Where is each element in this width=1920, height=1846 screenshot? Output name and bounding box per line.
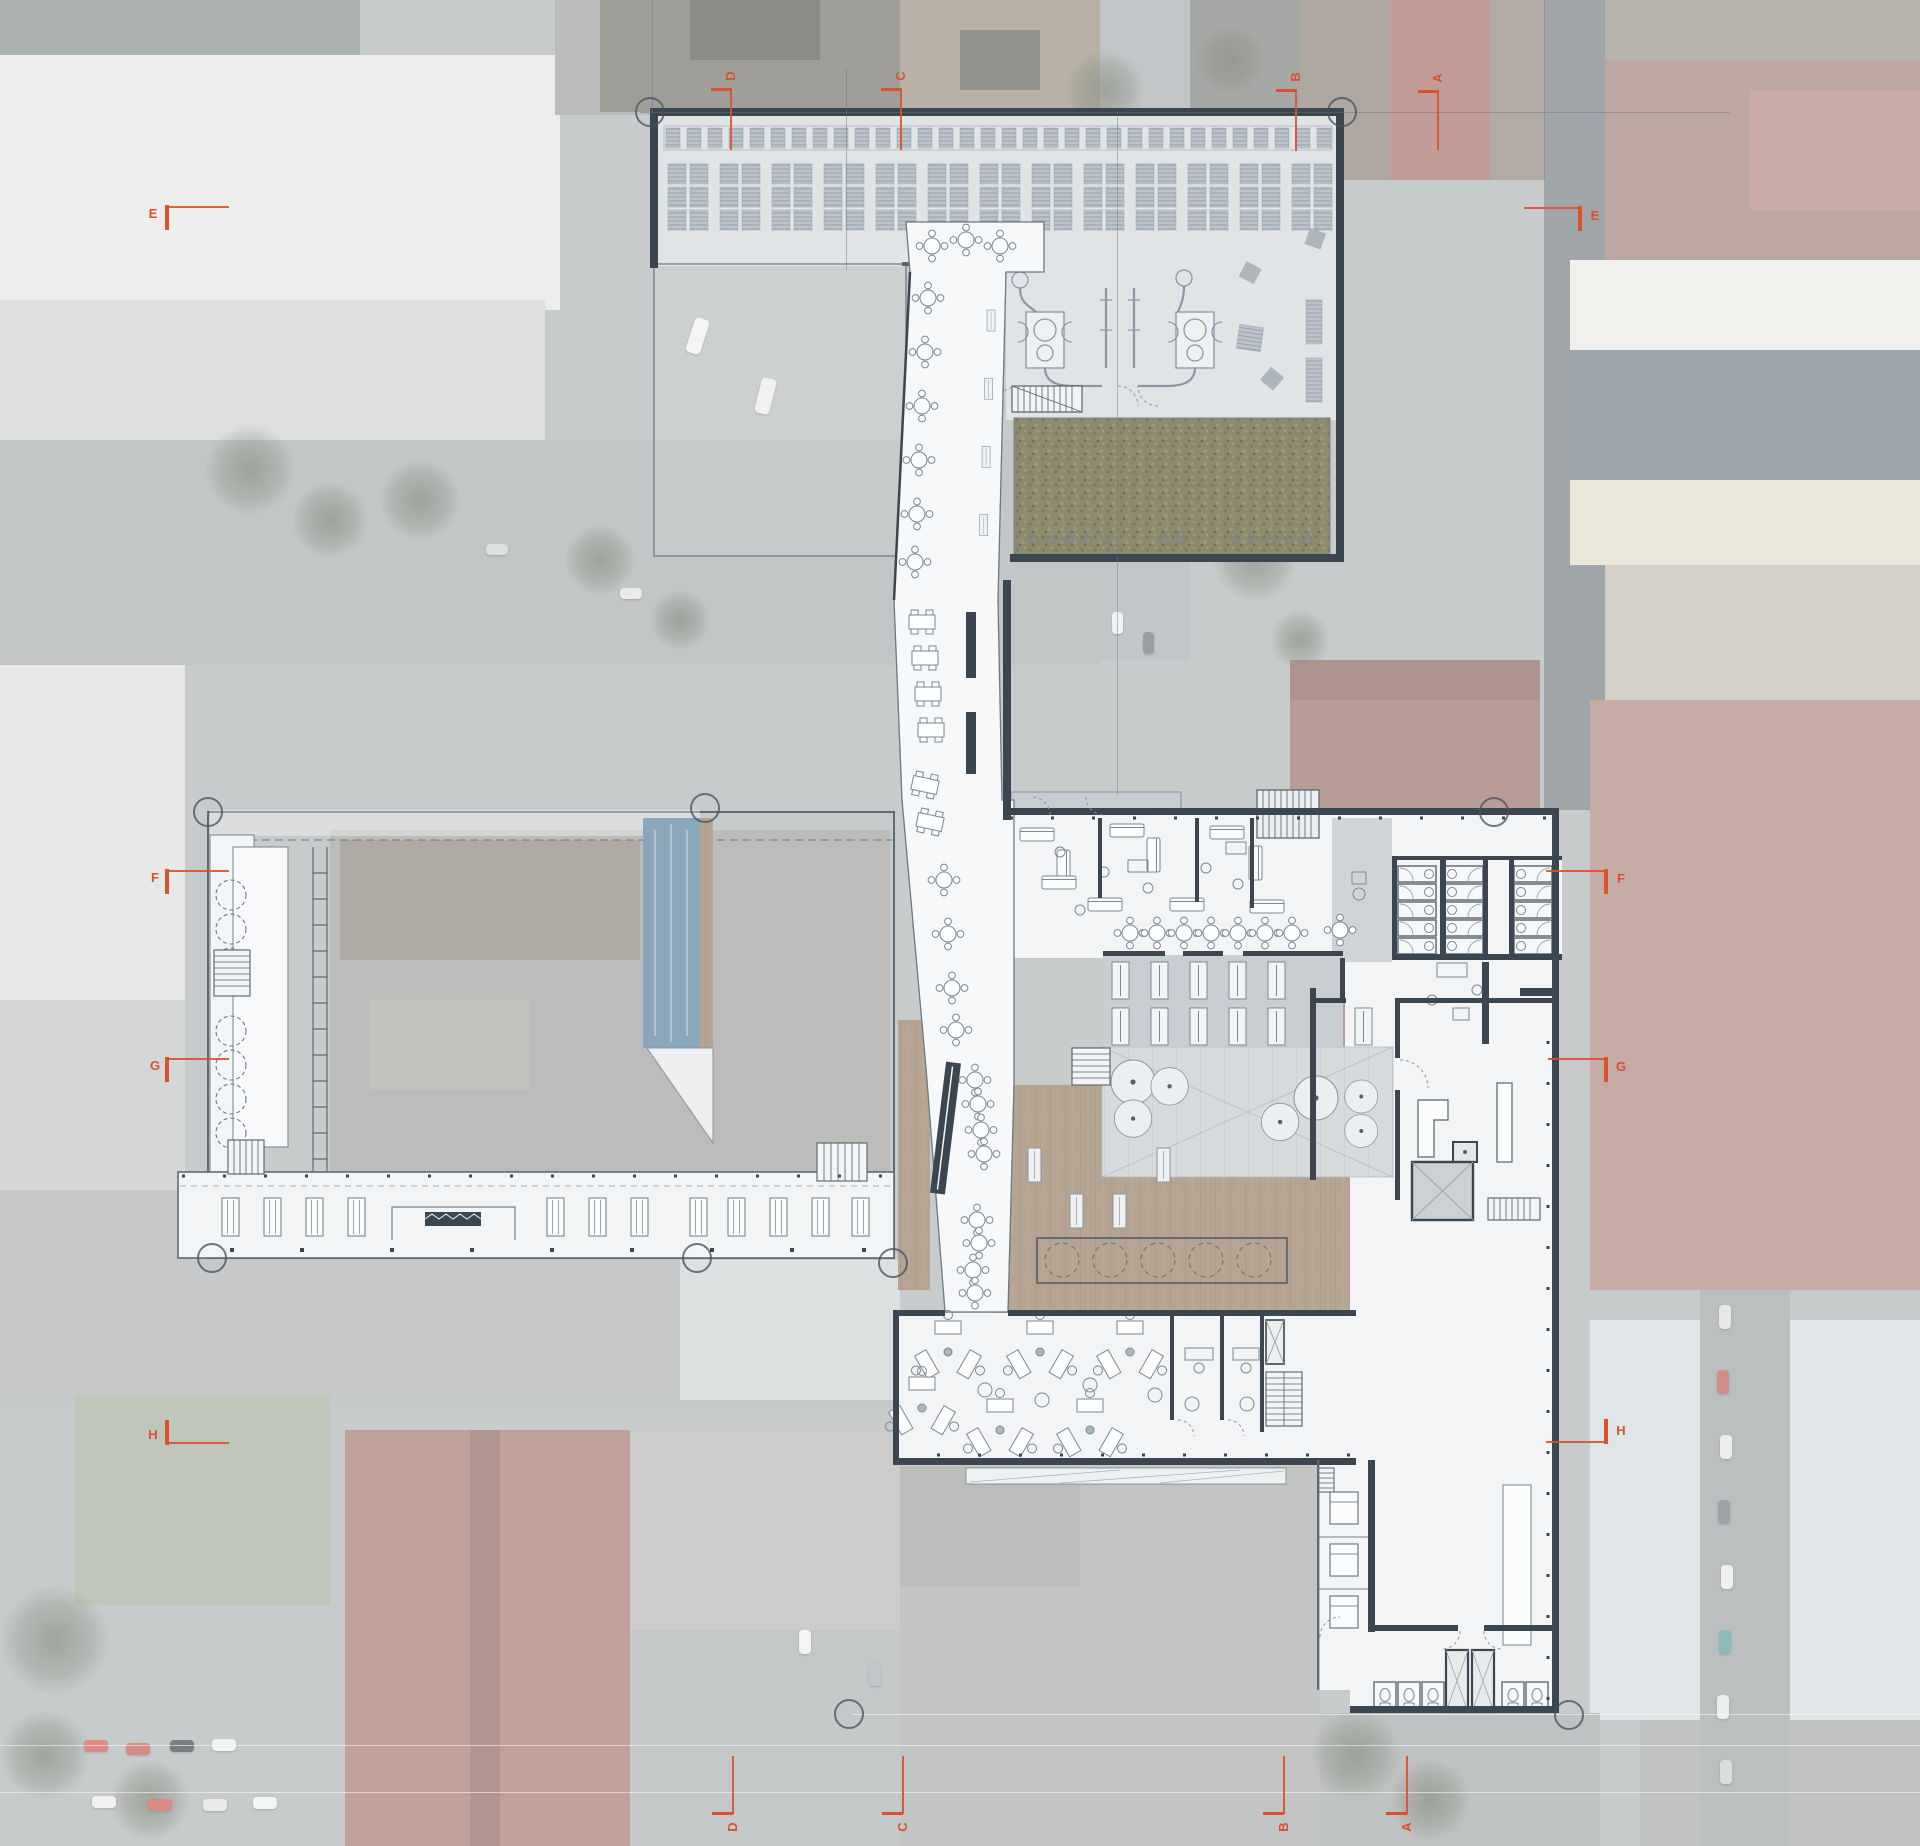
section-marker-tick [881, 88, 902, 91]
section-marker-tick [1386, 1812, 1407, 1815]
section-marker-line [1295, 91, 1297, 151]
section-marker-line [1406, 1756, 1408, 1814]
section-marker-tick [165, 1057, 169, 1082]
section-marker-tick [1604, 1419, 1608, 1444]
grid-line [1117, 112, 1118, 795]
section-marker-label: E [144, 206, 162, 222]
section-marker-tick [711, 88, 732, 91]
grid-line [640, 112, 1730, 113]
section-marker-label: A [1399, 1818, 1415, 1836]
section-marker-tick [1604, 1057, 1608, 1082]
left-wing-stair [214, 950, 250, 996]
ramp [647, 1048, 713, 1143]
grid-bubble [878, 1248, 908, 1278]
crane-rail [313, 847, 327, 1173]
grid-line [846, 68, 847, 270]
section-marker-line [169, 1058, 229, 1060]
section-marker-tick [882, 1812, 903, 1815]
floor-plan-drawing [0, 0, 1920, 1846]
section-marker-tick [712, 1812, 733, 1815]
grid-line [652, 0, 653, 112]
section-marker-line [169, 1442, 229, 1444]
section-marker-label: G [146, 1058, 164, 1074]
grid-line [0, 1792, 1920, 1793]
section-marker-tick [1578, 206, 1582, 231]
grid-bubble [1479, 797, 1509, 827]
section-marker-line [1546, 870, 1604, 872]
section-marker-label: C [895, 1818, 911, 1836]
section-marker-line [1546, 1441, 1604, 1443]
section-marker-label: F [1612, 871, 1630, 887]
section-marker-label: D [725, 1818, 741, 1836]
grid-bubble [834, 1699, 864, 1729]
grid-bubble [1327, 97, 1357, 127]
section-marker-label: C [893, 67, 909, 85]
section-marker-label: G [1612, 1059, 1630, 1075]
section-marker-line [730, 90, 732, 150]
section-marker-line [732, 1756, 734, 1814]
section-marker-label: E [1586, 208, 1604, 224]
section-marker-line [169, 870, 229, 872]
wing-counter [1503, 1485, 1531, 1645]
section-marker-label: D [723, 67, 739, 85]
grid-bubble [682, 1243, 712, 1273]
left-building [178, 810, 894, 1258]
pool-deck [700, 818, 713, 1048]
section-marker-tick [1263, 1812, 1284, 1815]
section-marker-tick [1604, 869, 1608, 894]
section-marker-line [1524, 207, 1578, 209]
section-marker-label: H [1612, 1423, 1630, 1439]
grid-bubble [197, 1243, 227, 1273]
section-marker-tick [165, 869, 169, 894]
grid-line [0, 1745, 1920, 1746]
section-marker-tick [1276, 89, 1297, 92]
grid-line [852, 1714, 1920, 1715]
grid-bubble [193, 797, 223, 827]
section-marker-label: B [1288, 68, 1304, 86]
grass-courtyard [1014, 418, 1330, 554]
grid-bubble [690, 793, 720, 823]
section-marker-line [902, 1756, 904, 1814]
left-bottom-wing [178, 1140, 894, 1258]
servery-floor [1103, 955, 1343, 1047]
section-marker-label: H [144, 1427, 162, 1443]
section-marker-label: A [1430, 69, 1446, 87]
section-marker-label: F [146, 870, 164, 886]
section-marker-line [1437, 92, 1439, 150]
section-marker-line [1283, 1756, 1285, 1814]
grid-bubble [1554, 1700, 1584, 1730]
grid-bubble [635, 97, 665, 127]
section-marker-label: B [1276, 1818, 1292, 1836]
section-marker-line [900, 90, 902, 150]
section-marker-line [1548, 1058, 1604, 1060]
site-plan-canvas: EFGHEFGHDCBADCBA [0, 0, 1920, 1846]
section-marker-tick [1418, 90, 1439, 93]
section-marker-tick [165, 205, 169, 230]
grid-line [1544, 0, 1545, 808]
hall-entry-stair [1012, 386, 1082, 412]
section-marker-line [169, 206, 229, 208]
restrooms [1392, 856, 1562, 960]
